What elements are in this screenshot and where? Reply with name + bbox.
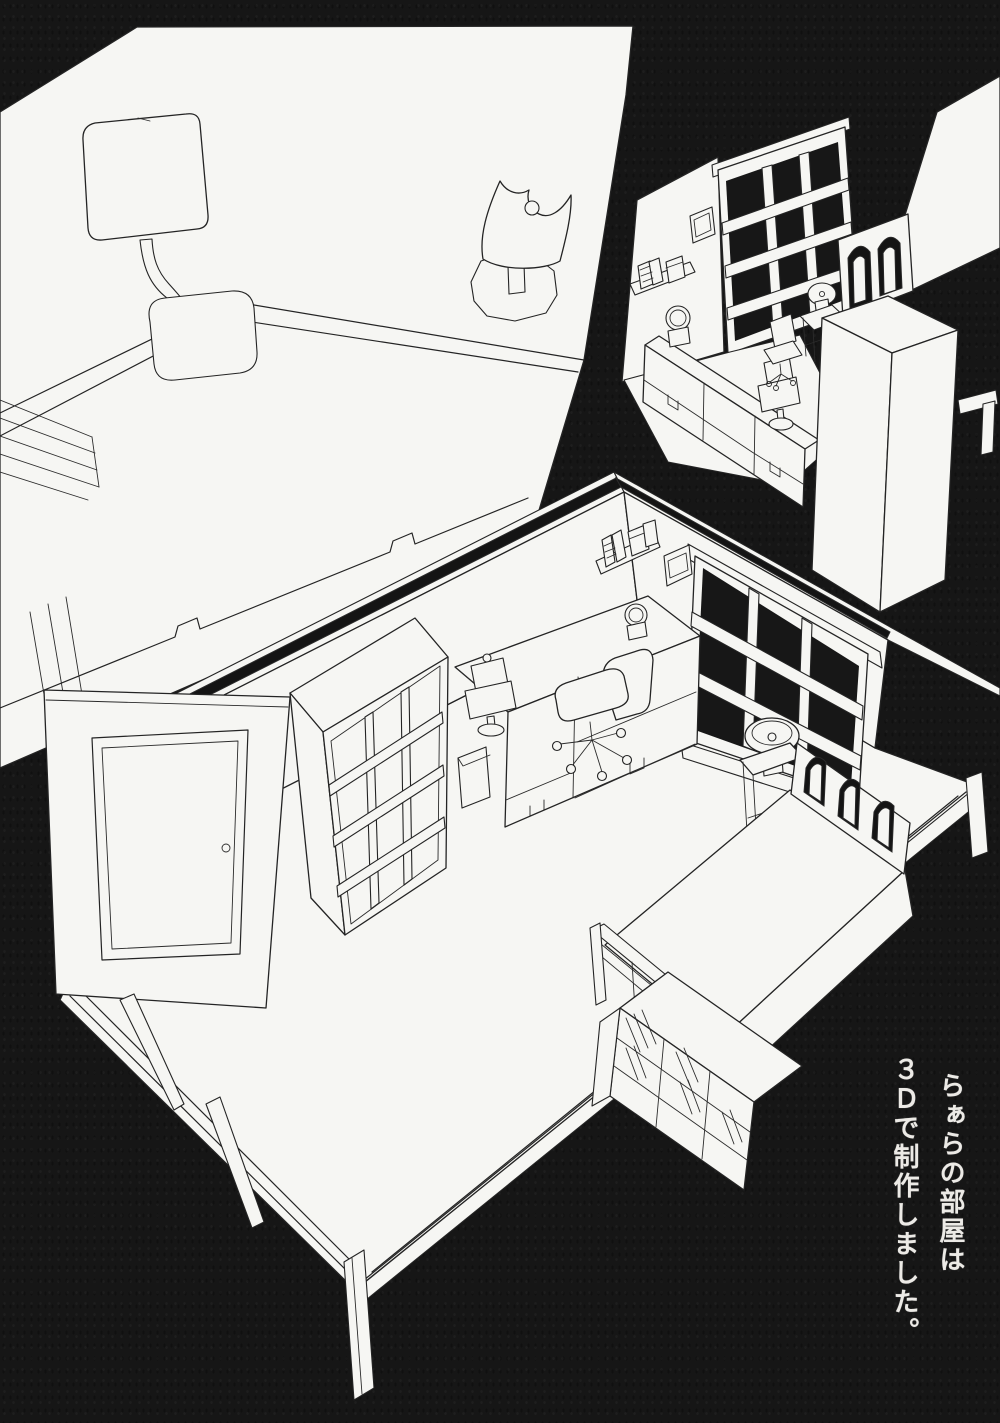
east-corner-post xyxy=(966,772,988,858)
mirror-lamp-shade xyxy=(83,114,208,240)
caption: らぁらの部屋は ３Ｄで制作しました。 xyxy=(877,1056,978,1346)
overview-side-shelf xyxy=(958,390,998,455)
tulip-lamp-finial xyxy=(525,201,539,215)
overview-wardrobe xyxy=(812,296,958,612)
room-3d-illustration xyxy=(0,0,1000,1423)
door-wall xyxy=(44,690,290,1008)
caption-line-1: らぁらの部屋は xyxy=(932,1056,969,1346)
trash-bin xyxy=(458,747,490,808)
manga-page: らぁらの部屋は ３Ｄで制作しました。 xyxy=(0,0,1000,1423)
mirror-lamp-base xyxy=(149,291,257,380)
caption-line-2: ３Ｄで制作しました。 xyxy=(886,1056,923,1346)
overview-bed xyxy=(905,76,1000,290)
overview-mirror xyxy=(666,306,690,347)
